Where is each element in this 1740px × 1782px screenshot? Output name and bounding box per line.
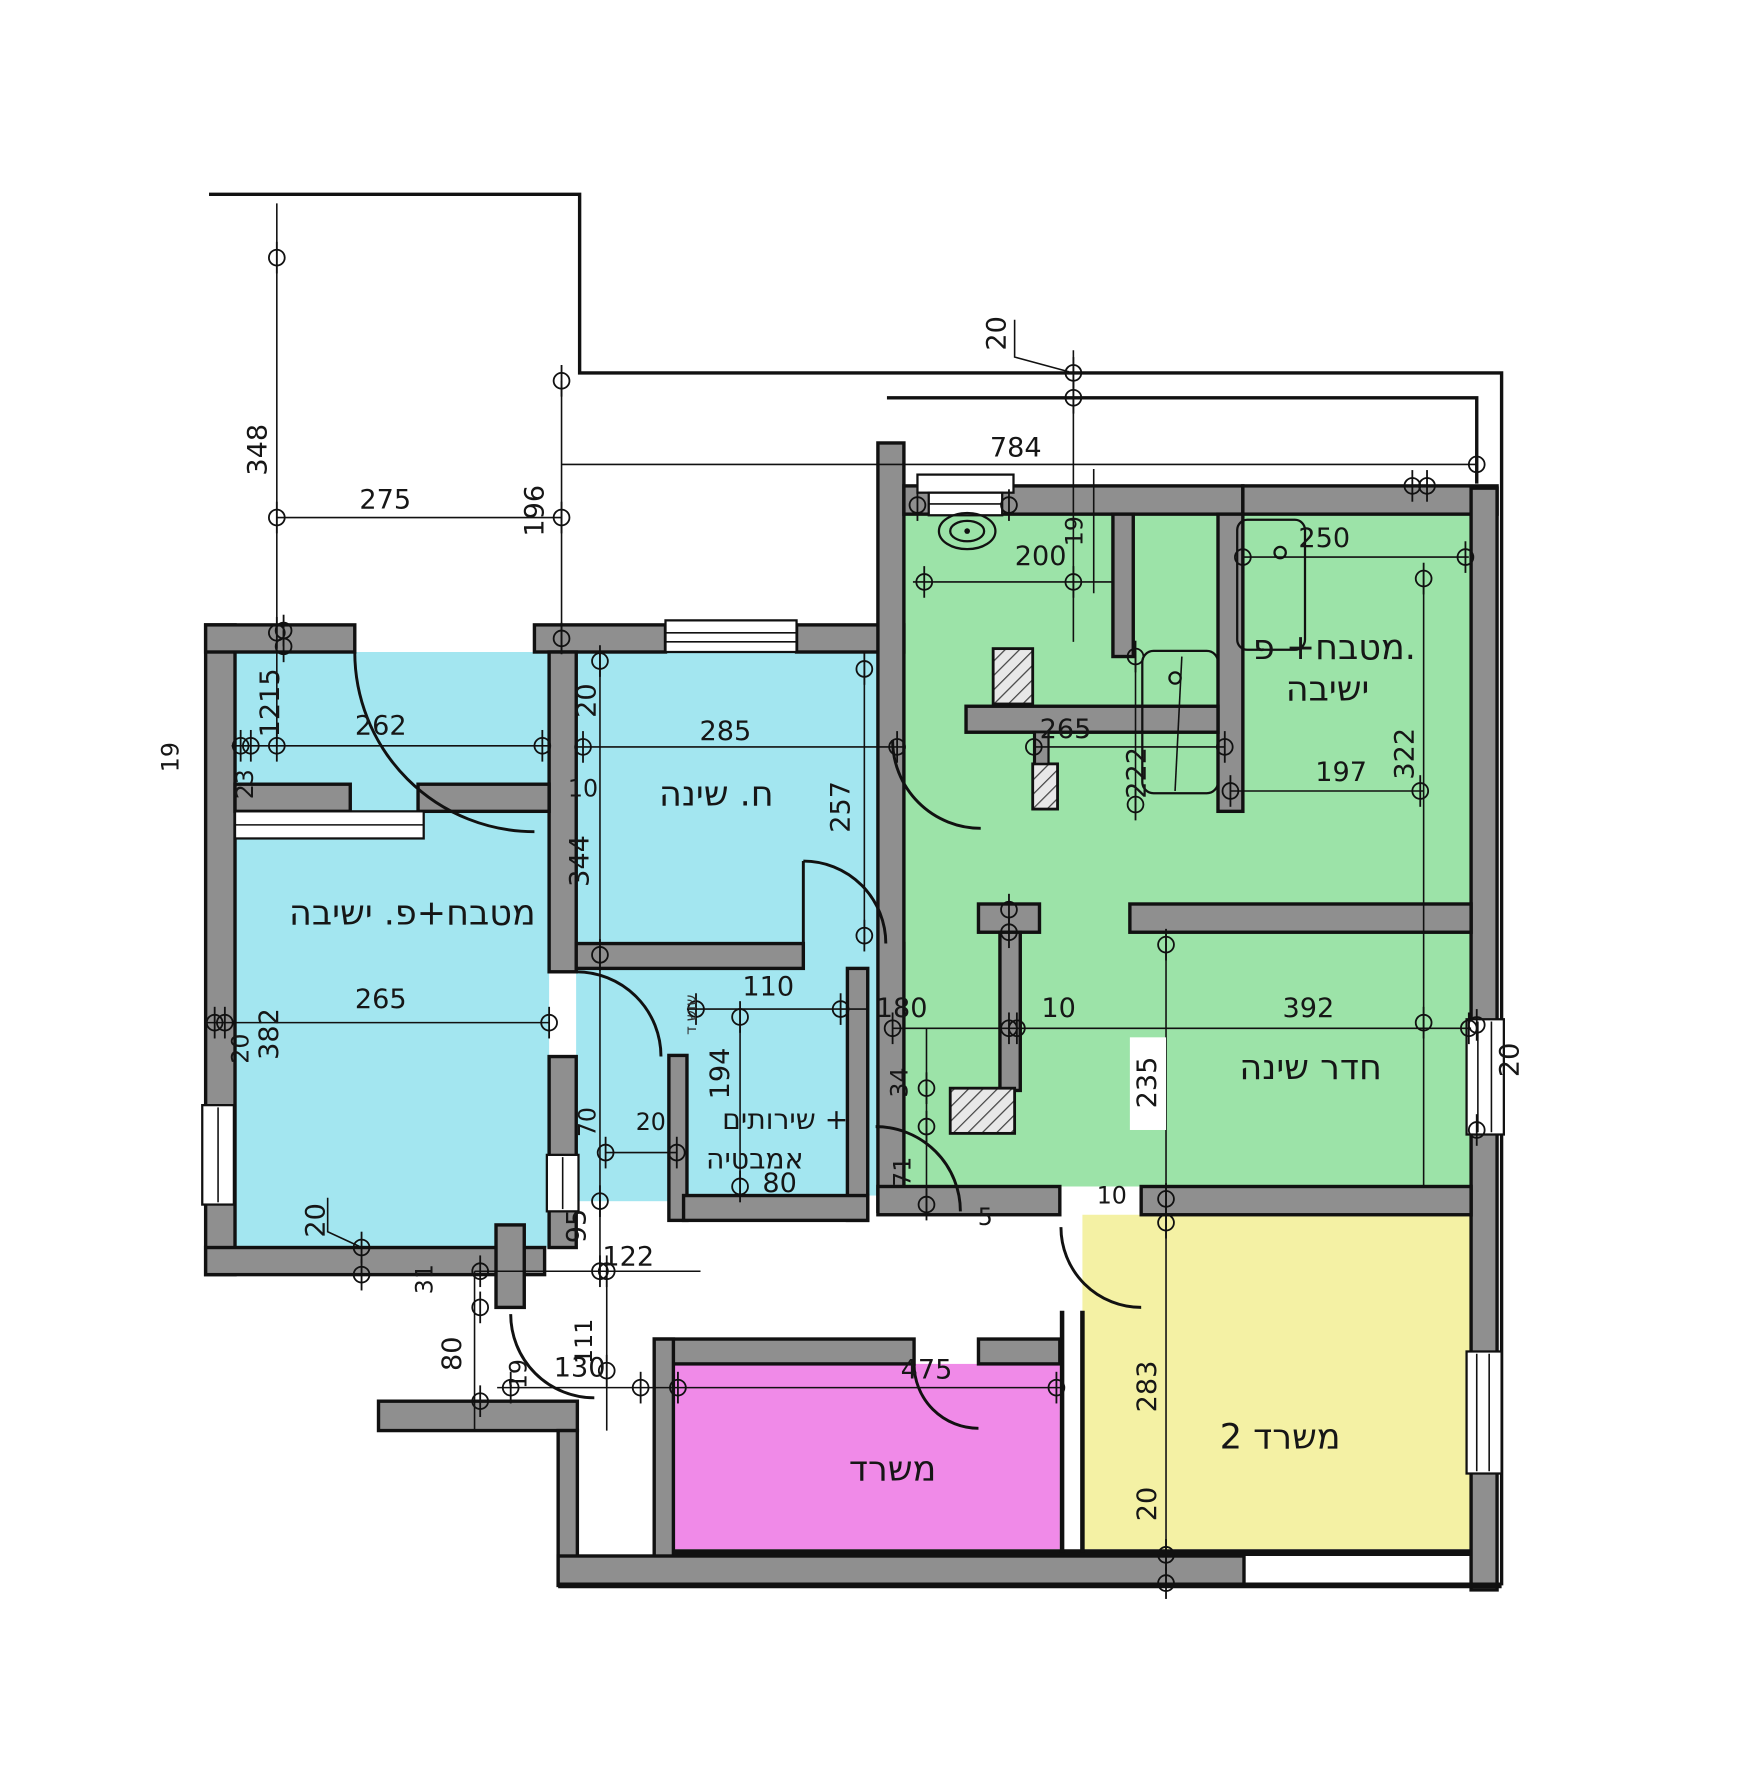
room-label-bedroom-green: חדר שינה: [1239, 1047, 1381, 1088]
room-label-kitchen-green-1: מטבח+ פ.: [1253, 627, 1416, 668]
dim-10-wall: 10: [1097, 1181, 1127, 1209]
window-office2: [1467, 1351, 1502, 1473]
dim-283: 283: [1132, 1361, 1163, 1413]
dim-265-green: 265: [1040, 714, 1092, 745]
dim-392: 392: [1283, 993, 1335, 1024]
dim-265-cyan: 265: [355, 984, 407, 1015]
column-hatched-1: [950, 1088, 1014, 1133]
floor-plan-canvas: 348 275 196 784 20 200 250 19 265 197 32…: [0, 0, 1740, 1782]
dim-20-window: 20: [1495, 1043, 1526, 1078]
room-label-kitchen-cyan: מטבח+פ. ישיבה: [289, 892, 536, 933]
dim-19-entry: 19: [505, 1359, 533, 1389]
dim-34: 34: [885, 1067, 913, 1097]
dim-285: 285: [700, 716, 752, 747]
dim-20-leftwall: 20: [227, 1034, 255, 1064]
dim-196: 196: [519, 485, 550, 537]
dim-180: 180: [876, 993, 928, 1024]
cyan-corridor-area: [576, 968, 669, 1201]
dim-20-bl: 20: [300, 1203, 331, 1238]
window-green-bath-outer: [917, 475, 1013, 493]
dim-95: 95: [561, 1209, 592, 1244]
dim-23: 23: [231, 769, 259, 799]
dim-348: 348: [243, 424, 274, 476]
room-label-office: משרד: [849, 1448, 936, 1489]
dim-111: 111: [570, 1319, 598, 1364]
dim-344: 344: [565, 835, 596, 887]
floor-plan-page: 348 275 196 784 20 200 250 19 265 197 32…: [0, 0, 1740, 1782]
dim-475: 475: [901, 1355, 953, 1386]
dim-197: 197: [1315, 757, 1367, 788]
dim-235: 235: [1132, 1057, 1163, 1109]
dim-31: 31: [411, 1264, 439, 1294]
dim-122: 122: [602, 1242, 654, 1273]
dim-71: 71: [889, 1157, 917, 1187]
dim-19-left: 19: [157, 742, 185, 772]
column-hatched-3: [1033, 764, 1058, 809]
dim-70: 70: [573, 1107, 601, 1137]
window-bedroom-cyan: [665, 620, 796, 652]
dim-1215: 1215: [255, 668, 286, 737]
room-label-bath-2: אמבטיה: [706, 1142, 803, 1175]
dim-257: 257: [826, 781, 857, 833]
dim-20-office: 20: [1132, 1487, 1163, 1522]
dim-80-entry: 80: [437, 1336, 468, 1371]
dim-10-green: 10: [1041, 993, 1075, 1024]
dim-222: 222: [1122, 747, 1153, 799]
dim-110: 110: [742, 972, 794, 1003]
dim-250: 250: [1298, 523, 1350, 554]
room-label-bath-1: שירותים +: [722, 1103, 848, 1136]
dim-20-corr: 20: [636, 1108, 666, 1136]
dim-19-bath: 19: [1060, 516, 1088, 546]
dim-10-cyan: 10: [568, 775, 598, 803]
dim-200: 200: [1015, 541, 1067, 572]
room-label-bedroom-cyan: ח. שינה: [659, 774, 774, 815]
dim-5: 5: [978, 1203, 993, 1231]
dim-262: 262: [355, 710, 407, 741]
dim-784: 784: [990, 433, 1042, 464]
dim-20-bedwall: 20: [571, 683, 602, 718]
green-area: [904, 514, 1471, 1186]
dim-194: 194: [705, 1048, 736, 1100]
dim-322: 322: [1389, 728, 1420, 780]
dim-382: 382: [254, 1008, 285, 1060]
room-label-office2: משרד 2: [1220, 1417, 1341, 1458]
door-tag: שוש ד: [681, 995, 700, 1035]
column-hatched-2: [993, 649, 1033, 704]
room-label-kitchen-green-2: ישיבה: [1286, 669, 1370, 710]
dim-20-top: 20: [982, 316, 1013, 351]
dim-275: 275: [359, 484, 411, 515]
